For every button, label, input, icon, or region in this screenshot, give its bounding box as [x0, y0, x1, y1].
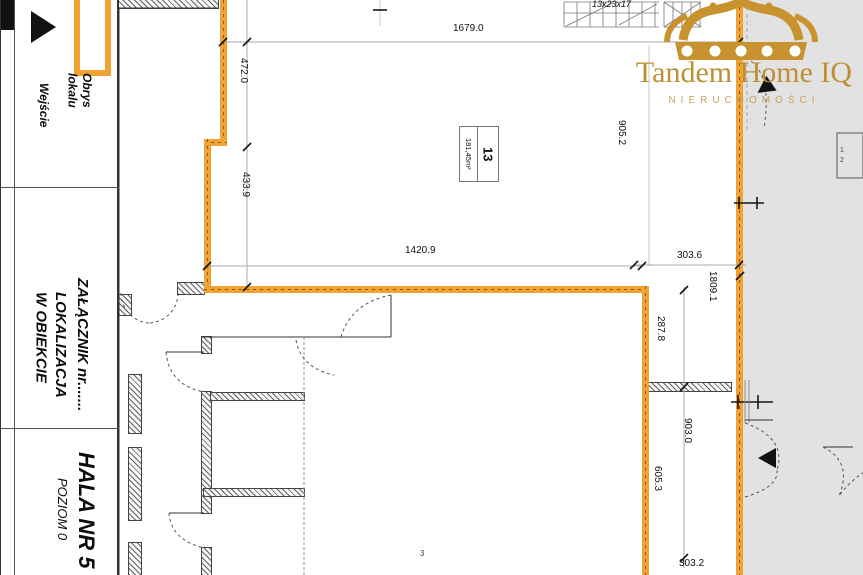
dim-notch: 303.6 [677, 251, 702, 261]
dim-left-lower: 433.9 [240, 172, 250, 197]
titleblock-divider-2 [1, 428, 118, 429]
dim-inner-bottom: 1420.9 [405, 246, 436, 256]
room-number: 13 [478, 127, 498, 181]
dim-top: 1679.0 [453, 24, 484, 34]
legend-outline-swatch [74, 0, 111, 76]
room-note: 3 [420, 550, 424, 558]
attachment-label: ZAŁĄCZNIK nr....... [74, 278, 91, 411]
titleblock-divider-1 [1, 187, 118, 188]
dim-strip-b: 903.0 [682, 418, 692, 443]
hall-title: HALA NR 5 [73, 452, 99, 569]
legend-outline-label: Obrys lokalu [65, 73, 94, 108]
level-title: POZIOM 0 [55, 478, 70, 540]
room-tag: 181,45m² 13 [459, 126, 499, 182]
logo-brand: Tandem Home IQ [629, 56, 859, 90]
dim-strip-c: 605.3 [652, 466, 662, 491]
dim-right-inner: 905.2 [616, 120, 626, 145]
legend-entrance-label: Wejście [37, 83, 51, 127]
titleblock-inner-border [14, 0, 15, 575]
logo-crown-icon [653, 0, 829, 64]
legend-entrance-icon [31, 11, 56, 43]
stair-note: 13x23x17 [592, 0, 631, 9]
door-leaf-1: 1 [840, 147, 844, 154]
dimension-ticks [203, 10, 773, 562]
logo-subtitle: NIERUCHOMOŚCI [629, 95, 859, 106]
door-leaf-2: 2 [840, 157, 844, 164]
floorplan-sheet: 1679.0 472.0 433.9 1420.9 905.2 303.6 18… [0, 0, 863, 575]
plan-frame-border [117, 0, 119, 575]
dim-left-upper: 472.0 [238, 58, 248, 83]
titleblock-corner [1, 0, 14, 30]
dim-strip-d: 303.2 [679, 559, 704, 569]
dim-strip-total: 1809.1 [707, 271, 717, 302]
location-label: LOKALIZACJA W OBIEKCIE [31, 292, 70, 398]
entrance-arrow-bottom-icon [758, 448, 776, 468]
room-area: 181,45m² [460, 127, 478, 181]
dim-strip-a: 287.8 [655, 316, 665, 341]
